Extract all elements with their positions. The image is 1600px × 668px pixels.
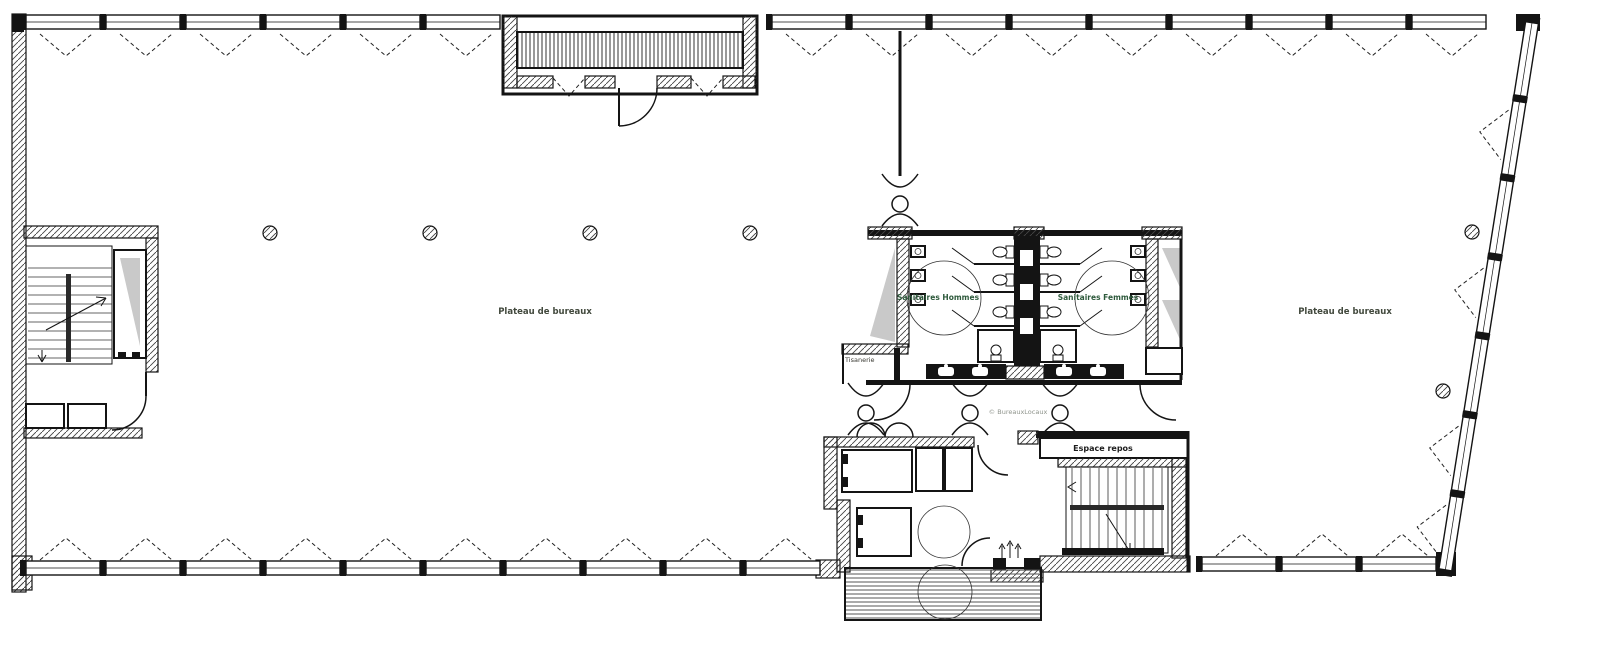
stair-west [26,246,112,364]
window-module [660,538,740,576]
window-module [926,14,1006,56]
stair-east [1058,458,1188,558]
window-module [420,538,500,576]
core-east-wall [146,238,158,372]
label-espace-repos: Espace repos [1073,444,1133,453]
turning-circle-lobby [918,506,970,558]
tisanerie-door-symbol [848,383,884,435]
window-module [180,14,260,56]
label-watermark: © BureauxLocaux [989,408,1048,416]
north-window-band-right [766,14,1486,56]
core-south-wall-2 [1040,556,1190,572]
elevator-west [114,250,146,358]
window-module [766,14,846,56]
toilet-stalls-women [1040,246,1102,326]
south-window-band-left [20,538,820,576]
window-module [1166,14,1246,56]
deck-terrace [845,565,1041,620]
window-module [1406,14,1486,56]
toilet-stalls-men [952,246,1014,326]
east-window-wall [1410,11,1540,577]
store-room [1146,348,1182,374]
window-module [340,14,420,56]
window-module [260,538,340,576]
elevator-2 [857,508,911,556]
south-core [824,423,1190,620]
window-module [180,538,260,576]
window-module [580,538,660,576]
lobby-partition [882,31,918,226]
storage-room-west [26,372,146,430]
west-core [24,226,158,438]
window-module [1488,174,1515,255]
service-rooms [916,448,972,491]
vestibule-west-pier [503,16,517,88]
window-module [20,14,100,56]
window-module [846,14,926,56]
label-tisanerie: Tisanerie [844,356,875,364]
window-module [1006,14,1086,56]
window-module [1424,406,1478,492]
window-module [1463,332,1490,413]
core-door-arcs [857,423,913,437]
west-wall [12,14,26,592]
label-office-left: Plateau de bureaux [498,307,592,317]
window-module [1449,248,1503,334]
window-module [100,538,180,576]
window-module [1474,90,1528,176]
door-symbol-women [1042,383,1078,435]
window-module [740,538,820,576]
window-module [1326,14,1406,56]
duct-spine [1014,236,1040,366]
core-south-wall [24,428,142,438]
door-swing-se [1140,385,1176,420]
window-module [1276,534,1356,572]
label-sanitaires-hommes: Sanitaires Hommes [897,293,980,302]
window-module [500,538,580,576]
sink-counter-men [926,364,1006,379]
window-module [1196,534,1276,572]
elevator-1 [842,450,912,492]
window-module [100,14,180,56]
window-module [1086,14,1166,56]
south-window-band-right [1196,534,1436,572]
door-swing-sw [874,385,910,420]
entrance-mat [517,32,743,68]
core-north-wall [24,226,158,238]
north-window-band-left [20,14,500,56]
floor-plan: Plateau de bureaux Plateau de bureaux Sa… [0,0,1600,668]
window-module [1246,14,1326,56]
core-door-swing [112,396,146,430]
label-sanitaires-femmes: Sanitaires Femmes [1058,293,1139,302]
entrance-vestibule [503,16,757,126]
door-swing-upper [978,445,1008,475]
window-module [260,14,340,56]
sink-counter-women [1044,364,1124,379]
lobby-door-symbol [882,174,918,226]
window-module [420,14,500,56]
label-office-right: Plateau de bureaux [1298,307,1392,317]
sanitary-east-wall [1146,239,1158,347]
structural-columns [263,225,1479,398]
door-swing-lower [962,538,990,566]
window-module [340,538,420,576]
core-north-wall [824,437,974,447]
window-module [1356,534,1436,572]
sanitary-block [842,227,1182,435]
door-symbol-men [952,383,988,435]
exterior-walls [12,14,1540,592]
